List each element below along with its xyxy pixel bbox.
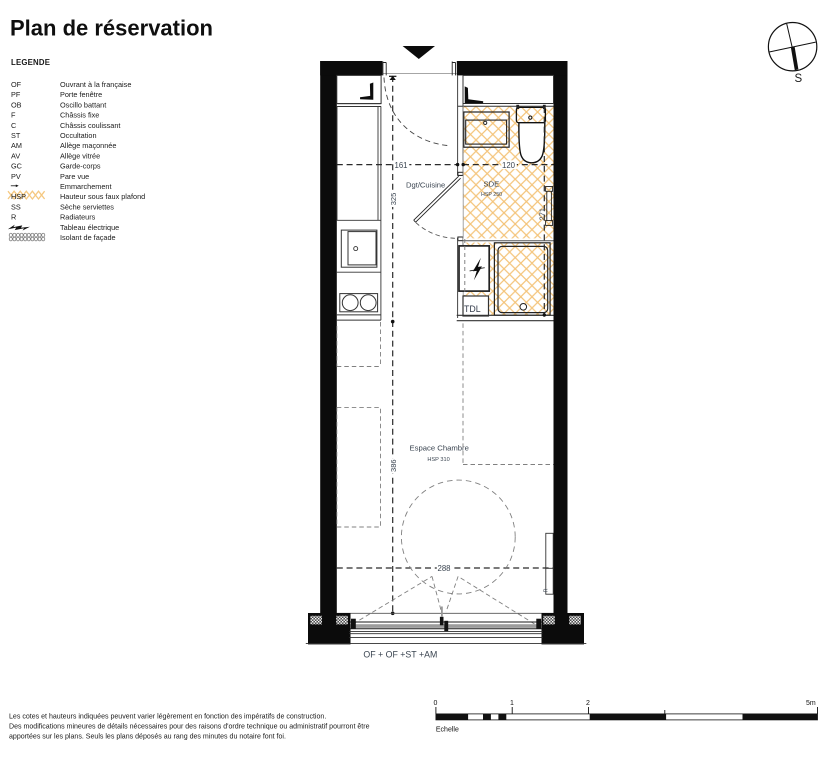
svg-text:161: 161 — [395, 161, 408, 170]
svg-text:OF + OF +ST +AM: OF + OF +ST +AM — [363, 650, 437, 660]
svg-text:OF: OF — [11, 80, 22, 89]
svg-text:Radiateurs: Radiateurs — [60, 213, 96, 222]
svg-text:Allège maçonnée: Allège maçonnée — [60, 141, 116, 150]
svg-text:SDE: SDE — [484, 180, 500, 189]
svg-text:OB: OB — [11, 100, 22, 109]
svg-text:TDL: TDL — [464, 304, 481, 314]
svg-text:0: 0 — [434, 700, 438, 707]
svg-text:Porte fenêtre: Porte fenêtre — [60, 90, 102, 99]
svg-text:ST: ST — [11, 131, 21, 140]
svg-text:Espace Chambre: Espace Chambre — [410, 444, 469, 453]
svg-text:Echelle: Echelle — [436, 727, 459, 734]
svg-text:S: S — [795, 73, 803, 85]
svg-text:Oscillo battant: Oscillo battant — [60, 100, 106, 109]
svg-text:Des modifications mineures de: Des modifications mineures de détails né… — [9, 724, 370, 731]
svg-text:F: F — [11, 111, 16, 120]
svg-text:325: 325 — [389, 193, 398, 206]
svg-text:HSP: HSP — [11, 192, 26, 201]
svg-text:271: 271 — [538, 208, 547, 221]
svg-text:AV: AV — [11, 151, 20, 160]
svg-text:Plan de réservation: Plan de réservation — [10, 16, 213, 41]
svg-text:C: C — [11, 121, 16, 130]
svg-text:Garde-corps: Garde-corps — [60, 162, 101, 171]
svg-text:Occultation: Occultation — [60, 131, 97, 140]
svg-text:GC: GC — [11, 162, 22, 171]
svg-text:Sèche serviettes: Sèche serviettes — [60, 202, 114, 211]
svg-text:AM: AM — [11, 141, 22, 150]
svg-text:2: 2 — [586, 700, 590, 707]
svg-text:HSP 310: HSP 310 — [427, 457, 449, 463]
svg-text:386: 386 — [389, 459, 398, 472]
svg-text:Emmarchement: Emmarchement — [60, 182, 112, 191]
svg-text:Tableau électrique: Tableau électrique — [60, 223, 119, 232]
svg-text:R: R — [543, 588, 549, 592]
svg-text:1: 1 — [510, 700, 514, 707]
svg-text:120: 120 — [502, 161, 516, 170]
svg-text:288: 288 — [438, 564, 451, 573]
svg-text:Hauteur sous faux plafond: Hauteur sous faux plafond — [60, 192, 145, 201]
svg-text:HSP 250: HSP 250 — [481, 192, 502, 198]
svg-text:Isolant de façade: Isolant de façade — [60, 233, 116, 242]
svg-text:Pare vue: Pare vue — [60, 172, 89, 181]
svg-text:apportées sur les plans. Seuls: apportées sur les plans. Seuls les plans… — [9, 734, 286, 741]
svg-text:Ouvrant à la française: Ouvrant à la française — [60, 80, 131, 89]
svg-text:PF: PF — [11, 90, 21, 99]
svg-text:PV: PV — [11, 172, 21, 181]
svg-text:Les cotes et hauteurs indiquée: Les cotes et hauteurs indiquées peuvent … — [9, 714, 326, 721]
svg-text:Allège vitrée: Allège vitrée — [60, 151, 100, 160]
svg-text:SS: SS — [11, 202, 21, 211]
svg-text:5m: 5m — [806, 700, 816, 707]
svg-text:LEGENDE: LEGENDE — [11, 58, 50, 67]
svg-text:Châssis coulissant: Châssis coulissant — [60, 121, 120, 130]
svg-text:R: R — [11, 213, 16, 222]
svg-text:Châssis fixe: Châssis fixe — [60, 111, 99, 120]
svg-text:Dgt/Cuisine: Dgt/Cuisine — [406, 181, 445, 190]
